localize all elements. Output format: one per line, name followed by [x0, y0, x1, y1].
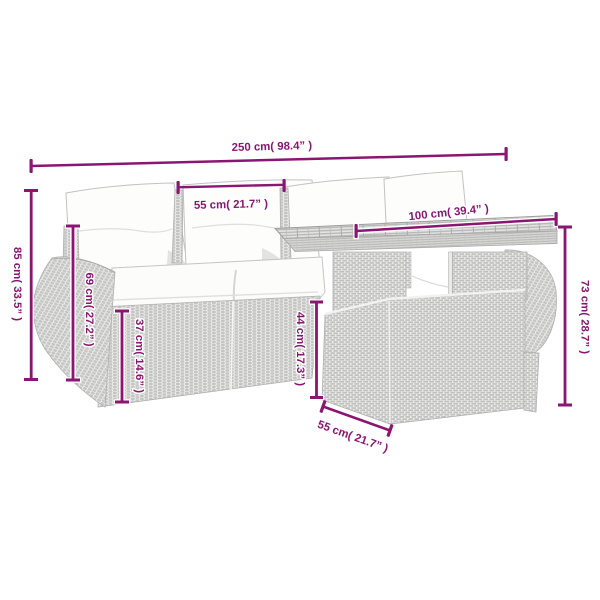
svg-text:37 cm( 14.6” ): 37 cm( 14.6” ) — [133, 319, 145, 393]
svg-text:55 cm( 21.7” ): 55 cm( 21.7” ) — [194, 198, 269, 212]
svg-text:44 cm( 17.3” ): 44 cm( 17.3” ) — [294, 312, 306, 386]
svg-text:85 cm( 33.5” ): 85 cm( 33.5” ) — [11, 247, 23, 321]
svg-text:73 cm( 28.7” ): 73 cm( 28.7” ) — [579, 280, 591, 354]
svg-text:69 cm( 27.2” ): 69 cm( 27.2” ) — [83, 272, 95, 346]
svg-text:250 cm( 98.4” ): 250 cm( 98.4” ) — [232, 140, 313, 154]
